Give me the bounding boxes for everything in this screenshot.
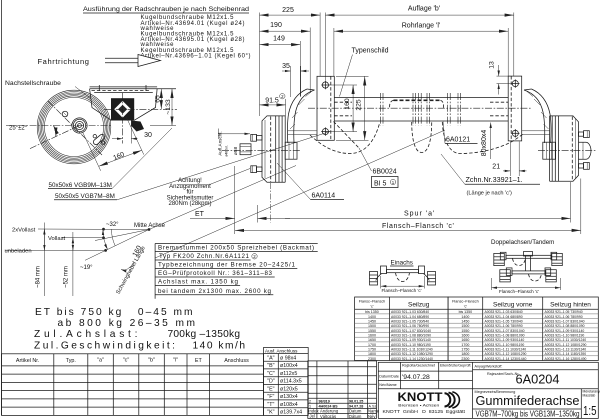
svg-text:1650: 1650: [368, 338, 376, 342]
svg-text:Bremsstummel 200x50 Spreizhe: Bremsstummel 200x50 Spreizhebel (Backmat…: [158, 245, 314, 252]
svg-text:2300: 2300: [461, 357, 469, 361]
svg-text:21: 21: [492, 163, 500, 170]
svg-text:1400: 1400: [368, 315, 376, 319]
svg-text:Einachs: Einachs: [391, 260, 413, 267]
svg-text:bei tandem 2x1300 max. 260: bei tandem 2x1300 max. 2600 kg: [158, 288, 272, 295]
svg-text:1:5: 1:5: [583, 404, 597, 418]
svg-text:Rajzolta/Gezeichnet: Rajzolta/Gezeichnet: [402, 364, 435, 368]
svg-text:98.01.25: 98.01.25: [349, 399, 363, 403]
svg-text:A0033 921–1.05 730/940: A0033 921–1.05 730/940: [545, 310, 583, 314]
svg-text:30: 30: [144, 132, 152, 139]
svg-text:A0033 921–1.03 630/840: A0033 921–1.03 630/840: [485, 310, 523, 314]
svg-text:1750: 1750: [461, 348, 469, 352]
svg-text:ET: ET: [195, 211, 205, 218]
svg-text:ø114.3x5: ø114.3x5: [280, 379, 302, 385]
svg-text:ø100x4: ø100x4: [280, 363, 298, 369]
svg-text:A0033 921–1.04 680/890: A0033 921–1.04 680/890: [485, 315, 523, 319]
svg-text:98/319: 98/319: [319, 399, 330, 403]
svg-text:A0033 921–1.14 1230/1440: A0033 921–1.14 1230/1440: [391, 357, 433, 361]
svg-text:1500: 1500: [461, 324, 469, 328]
svg-text:2300: 2300: [368, 357, 376, 361]
svg-text:Typ.: Typ.: [66, 358, 76, 364]
svg-text:A0033 921–1.03 630/840: A0033 921–1.03 630/840: [391, 310, 429, 314]
svg-text:Artikel–Nr.43696–1.01 (Kegel: Artikel–Nr.43696–1.01 (Kegel 60°): [141, 54, 251, 60]
svg-text:225: 225: [356, 99, 363, 111]
svg-text:Flansch–Flansch 'c': Flansch–Flansch 'c': [499, 289, 539, 294]
svg-text:A0033 921–1.07 830/1040: A0033 921–1.07 830/1040: [391, 329, 431, 333]
svg-text:A0033 921–1.09 930/1140: A0033 921–1.09 930/1140: [545, 329, 585, 333]
svg-text:Bremsen • Achsen: Bremsen • Achsen: [398, 402, 439, 407]
svg-text:A0033 921–1.13 1130/1340: A0033 921–1.13 1130/1340: [545, 348, 587, 352]
svg-text:50x50x6 VGB9M–13M: 50x50x6 VGB9M–13M: [49, 182, 112, 189]
svg-text:Ausf. Anschluss: Ausf. Anschluss: [265, 348, 298, 353]
svg-text:BI 5: BI 5: [374, 180, 387, 187]
svg-text:A0033 921–1.07 830/1040: A0033 921–1.07 830/1040: [545, 320, 585, 324]
svg-text:A0033 921–1.08 880/1090: A0033 921–1.08 880/1090: [391, 334, 431, 338]
svg-text:6A0204: 6A0204: [516, 372, 560, 386]
svg-text:80x80x4: 80x80x4: [481, 130, 488, 157]
svg-text:A0033 921–1.10 980/1190: A0033 921–1.10 980/1190: [391, 343, 431, 347]
svg-text:"E": "E": [267, 387, 274, 393]
svg-text:225: 225: [282, 7, 294, 14]
svg-text:Achslast max. 1350 kg: Achslast max. 1350 kg: [158, 279, 239, 286]
svg-text:A0033 921–1.09 930/1140: A0033 921–1.09 930/1140: [391, 338, 431, 342]
svg-text:6A0121: 6A0121: [446, 137, 470, 144]
svg-text:A0033 921–1.06 780/990: A0033 921–1.06 780/990: [485, 324, 523, 328]
svg-text:Seilzug hinten: Seilzug hinten: [550, 302, 591, 309]
svg-text:'c': 'c': [370, 305, 374, 309]
svg-text:ø46 tol.: ø46 tol.: [225, 145, 229, 156]
svg-text:"D": "D": [267, 379, 275, 385]
svg-text:"T": "T": [267, 402, 274, 408]
svg-text:1400: 1400: [461, 315, 469, 319]
svg-text:Gummifederachse: Gummifederachse: [476, 393, 580, 408]
svg-text:2xVollast: 2xVollast: [12, 227, 36, 233]
svg-text:VGB7M–700kg bis VGB13M–1350k: VGB7M–700kg bis VGB13M–1350kg: [476, 409, 580, 418]
svg-text:bis 1350: bis 1350: [365, 310, 379, 314]
svg-text:A0033 921–1.14 1230/1440: A0033 921–1.14 1230/1440: [485, 357, 527, 361]
svg-text:A0033 921–1.11 1030/1240: A0033 921–1.11 1030/1240: [485, 348, 527, 352]
svg-text:Zul.Achslast:: Zul.Achslast:: [34, 329, 138, 340]
svg-text:35: 35: [282, 63, 290, 70]
svg-text:ø58: ø58: [233, 147, 239, 156]
svg-text:Doppelachsen/Tandem: Doppelachsen/Tandem: [491, 239, 554, 246]
svg-text:ø108x4: ø108x4: [280, 402, 298, 408]
svg-text:A0033 921–1.14 1180/1390: A0033 921–1.14 1180/1390: [545, 352, 587, 356]
svg-text:ø139.7x4: ø139.7x4: [280, 410, 302, 416]
svg-text:1650: 1650: [461, 338, 469, 342]
svg-text:Dátum/Date: Dátum/Date: [379, 375, 399, 379]
svg-text:1450: 1450: [461, 320, 469, 324]
svg-text:A0033 921–1.05 730/940: A0033 921–1.05 730/940: [391, 320, 429, 324]
svg-text:A0033 921–1.06 780/990: A0033 921–1.06 780/990: [545, 315, 583, 319]
svg-text:A0033 921–1.09 930/1140: A0033 921–1.09 930/1140: [485, 338, 525, 342]
svg-text:A0033 921–1.04 680/890: A0033 921–1.04 680/890: [391, 315, 429, 319]
svg-text:65: 65: [155, 95, 162, 103]
svg-text:bis 1350: bis 1350: [459, 310, 473, 314]
svg-text:Mitte Achse: Mitte Achse: [134, 223, 166, 229]
svg-text:A0033 921–1.07 830/1040: A0033 921–1.07 830/1040: [485, 329, 525, 333]
svg-text:"C": "C": [267, 371, 275, 377]
svg-text:Rohrlange 'l': Rohrlange 'l': [402, 23, 440, 30]
svg-text:"B": "B": [267, 363, 274, 369]
svg-text:~84 mm: ~84 mm: [36, 266, 42, 288]
svg-text:50x50x5 VGB7M–8M: 50x50x5 VGB7M–8M: [55, 193, 115, 200]
svg-text:A0033 921–1.10 980/1190: A0033 921–1.10 980/1190: [545, 334, 585, 338]
svg-text:"A": "A": [267, 356, 274, 362]
svg-text:Seilzug vorne: Seilzug vorne: [493, 302, 533, 309]
svg-text:"a": "a": [97, 358, 104, 364]
svg-text:1450: 1450: [368, 320, 376, 324]
svg-text:Nachstellschraube: Nachstellschraube: [5, 80, 61, 87]
svg-text:A0033 921–1.08 880/1090: A0033 921–1.08 880/1090: [485, 334, 525, 338]
svg-text:Fahrtrichtung: Fahrtrichtung: [38, 57, 90, 66]
svg-text:A0033 921–1.10 980/1190: A0033 921–1.10 980/1190: [485, 343, 525, 347]
svg-text:Zchn.Nr.33921–1.: Zchn.Nr.33921–1.: [466, 175, 523, 184]
svg-text:6B0024: 6B0024: [373, 169, 397, 176]
svg-text:Anschluss: Anschluss: [224, 358, 249, 364]
svg-text:13: 13: [488, 61, 495, 69]
svg-text:"F": "F": [267, 394, 274, 400]
svg-text:Dátum: Dátum: [349, 414, 362, 419]
svg-text:1750: 1750: [368, 348, 376, 352]
svg-text:A0033 921–1.06 780/990: A0033 921–1.06 780/990: [391, 324, 429, 328]
svg-text:"b": "b": [148, 358, 155, 364]
svg-text:Flansch–Flansch 'c': Flansch–Flansch 'c': [382, 288, 422, 293]
svg-text:ø112x5: ø112x5: [280, 371, 297, 377]
svg-text:A0033 921–1.12 1080/1290: A0033 921–1.12 1080/1290: [545, 343, 587, 347]
svg-text:Seilzug: Seilzug: [408, 302, 430, 309]
svg-text:Flansc–Flansch: Flansc–Flansch: [452, 300, 479, 304]
svg-text:Anyag/Werkstoff:: Anyag/Werkstoff:: [475, 364, 503, 368]
svg-text:149: 149: [273, 36, 285, 43]
svg-text:"K": "K": [267, 410, 274, 416]
svg-text:EG–Prüfprotokoll Nr.: 361–31: EG–Prüfprotokoll Nr.: 361–311–83: [158, 270, 273, 277]
svg-text:Jel: Jel: [310, 414, 315, 419]
svg-text:~19°: ~19°: [80, 265, 93, 271]
svg-text:A0033 921–1.05 730/940: A0033 921–1.05 730/940: [485, 320, 523, 324]
svg-text:Ausführung der Radschrauben: Ausführung der Radschrauben je nach Sche…: [83, 7, 249, 13]
svg-text:Masstab: Masstab: [583, 393, 596, 397]
svg-text:1550: 1550: [461, 329, 469, 333]
svg-text:280Nm (28kpm): 280Nm (28kpm): [168, 201, 211, 207]
svg-text:~32°: ~32°: [106, 222, 119, 228]
svg-text:Typenschild: Typenschild: [352, 48, 389, 55]
svg-text:2: 2: [309, 399, 311, 403]
svg-text:(Länge je nach 'c'): (Länge je nach 'c'): [467, 191, 512, 197]
svg-text:Zul.Geschwindigkeit:: Zul.Geschwindigkeit:: [34, 341, 175, 352]
svg-text:A0033 921–1.11 1030/1240: A0033 921–1.11 1030/1240: [391, 348, 433, 352]
svg-text:KNOTT GmbH D 83125 Eggstä: KNOTT GmbH D 83125 Eggstätt: [383, 409, 466, 414]
svg-text:Typ FK200 Zchn.Nr.6A1121: Typ FK200 Zchn.Nr.6A1121: [159, 253, 250, 260]
svg-text:190: 190: [270, 22, 282, 29]
svg-text:"l": "l": [173, 358, 178, 364]
svg-text:140 km/h: 140 km/h: [193, 341, 246, 352]
svg-text:ET: ET: [195, 358, 203, 364]
svg-text:1500: 1500: [368, 324, 376, 328]
svg-text:1700: 1700: [461, 343, 469, 347]
svg-text:Flansc–Flansch: Flansc–Flansch: [359, 300, 386, 304]
svg-text:Változás: Változás: [320, 414, 336, 419]
svg-text:91.5: 91.5: [265, 98, 279, 105]
svg-text:1600: 1600: [461, 334, 469, 338]
svg-text:unbeladen: unbeladen: [5, 249, 32, 255]
svg-text:A0033 921–1.16 1280/1490: A0033 921–1.16 1280/1490: [545, 357, 587, 361]
svg-text:1800: 1800: [461, 352, 469, 356]
svg-text:~133: ~133: [165, 99, 172, 115]
svg-text:ø130x4: ø130x4: [280, 394, 298, 400]
svg-text:ø 98x4: ø 98x4: [280, 356, 296, 362]
svg-text:1800: 1800: [368, 352, 376, 356]
svg-text:Ellenőrizte/Geprüft: Ellenőrizte/Geprüft: [440, 364, 471, 368]
svg-text:"c": "c": [123, 358, 130, 364]
svg-text:ø120x5: ø120x5: [280, 387, 298, 393]
svg-text:Spur 'a': Spur 'a': [404, 211, 435, 218]
svg-text:Artikel Nr.: Artikel Nr.: [16, 358, 39, 364]
svg-text:'94.07.28: '94.07.28: [402, 374, 430, 381]
svg-text:A0033 921–1.08 880/1090: A0033 921–1.08 880/1090: [545, 324, 585, 328]
svg-text:Auflage 'b': Auflage 'b': [408, 6, 440, 13]
svg-text:A0033 921–1.12 1080/1290: A0033 921–1.12 1080/1290: [485, 352, 527, 356]
svg-text:25°±2°: 25°±2°: [9, 126, 28, 132]
svg-text:Typbezeichnung der Bremse 2: Typbezeichnung der Bremse 20–2425/1: [158, 262, 296, 269]
svg-text:A0033 921–1.12 1080/1290: A0033 921–1.12 1080/1290: [391, 352, 433, 356]
svg-text:6A0114: 6A0114: [312, 193, 336, 200]
svg-text:A0033 921–1.11 1030/1240: A0033 921–1.11 1030/1240: [545, 338, 587, 342]
svg-text:Flansch–Flansch 'c': Flansch–Flansch 'c': [382, 223, 454, 230]
svg-text:1550: 1550: [368, 329, 376, 333]
svg-text:1700: 1700: [368, 343, 376, 347]
svg-text:Név: Név: [368, 414, 376, 419]
svg-text:Név/Name: Név/Name: [379, 383, 396, 387]
svg-text:~52 mm: ~52 mm: [64, 266, 70, 288]
svg-text:'c': 'c': [464, 305, 468, 309]
svg-text:Vollast: Vollast: [48, 236, 65, 242]
svg-text:700kg –1350kg: 700kg –1350kg: [168, 329, 241, 340]
svg-text:1600: 1600: [368, 334, 376, 338]
